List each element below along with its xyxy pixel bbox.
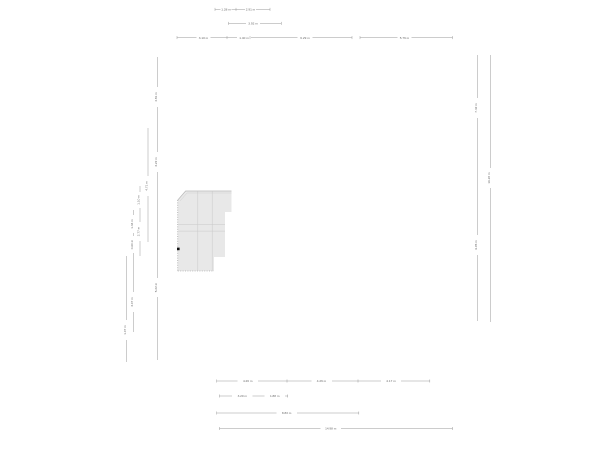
svg-text:8.83 m: 8.83 m (282, 411, 292, 415)
svg-text:3.07 m: 3.07 m (130, 297, 134, 307)
svg-text:4.26 m: 4.26 m (317, 379, 327, 383)
svg-text:1.88 m: 1.88 m (270, 394, 280, 398)
svg-text:16.22 m: 16.22 m (487, 172, 491, 184)
svg-text:3.10 m: 3.10 m (199, 36, 209, 40)
svg-text:9.05 m: 9.05 m (474, 240, 478, 250)
svg-text:14.98 m: 14.98 m (325, 427, 337, 431)
svg-text:4.26 m: 4.26 m (243, 379, 253, 383)
svg-text:5.76 m: 5.76 m (400, 36, 410, 40)
svg-text:3.20 m: 3.20 m (238, 394, 248, 398)
svg-text:3.92 m: 3.92 m (248, 22, 258, 26)
svg-text:4.71 m: 4.71 m (145, 181, 149, 191)
svg-text:1.28 m: 1.28 m (221, 8, 231, 12)
svg-text:3.22 m: 3.22 m (154, 157, 158, 167)
svg-text:2.77 m: 2.77 m (137, 226, 141, 236)
svg-text:7.42 m: 7.42 m (474, 103, 478, 113)
svg-text:1.40 m: 1.40 m (239, 36, 249, 40)
svg-text:4.81 m: 4.81 m (154, 92, 158, 102)
svg-text:1.07 m: 1.07 m (123, 325, 127, 335)
svg-text:0.60 m: 0.60 m (130, 239, 134, 249)
svg-text:6.29 m: 6.29 m (300, 36, 310, 40)
svg-text:1.34 m: 1.34 m (130, 219, 134, 229)
svg-text:5.22 m: 5.22 m (154, 282, 158, 292)
svg-text:1.10 m: 1.10 m (137, 195, 141, 205)
svg-text:2.91 m: 2.91 m (246, 8, 256, 12)
svg-text:4.17 m: 4.17 m (386, 379, 396, 383)
